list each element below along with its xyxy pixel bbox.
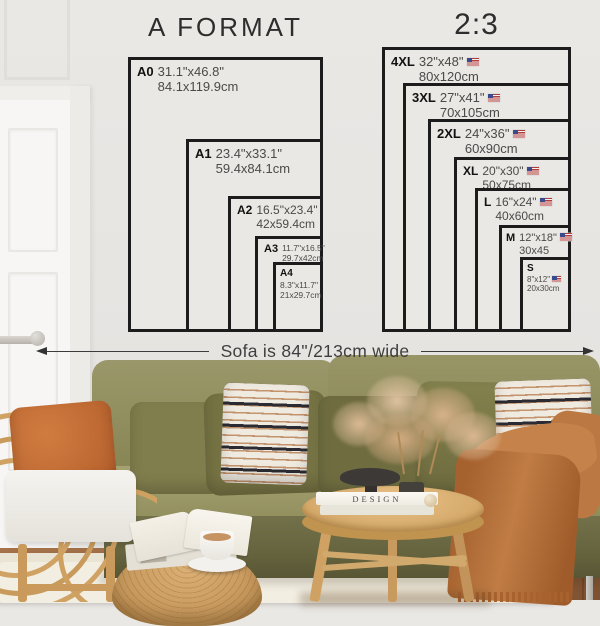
book (320, 505, 434, 515)
chair-seat-cushion (6, 470, 136, 542)
a-format-title: A FORMAT (128, 12, 323, 43)
us-flag-icon (488, 94, 500, 102)
size-code: A2 (237, 203, 252, 231)
size-cm: 84.1x119.9cm (158, 79, 239, 94)
size-code: A3 (264, 243, 278, 263)
arrow-line (47, 351, 209, 352)
sofa-width-annotation: Sofa is 84"/213cm wide (36, 342, 594, 360)
size-inches: 12"x18" (519, 232, 572, 245)
size-cm: 60x90cm (465, 141, 525, 156)
size-inches: 27"x41" (440, 90, 500, 105)
size-inches: 8.3"x11.7" (280, 280, 322, 290)
size-code: A4 (280, 268, 322, 280)
size-inches: 16.5"x23.4" (256, 203, 317, 217)
us-flag-icon (540, 198, 552, 206)
striped-pillow (220, 383, 309, 486)
size-inches: 24"x36" (465, 126, 525, 141)
size-cm: 42x59.4cm (256, 217, 317, 231)
size-cm: 20x30cm (527, 284, 561, 293)
ratio-2-3-title: 2:3 (382, 8, 571, 42)
ratio-2-3-chart: 4XL 32"x48" 80x120cm 3XL 27"x41" 70x105c… (382, 47, 571, 332)
size-code: A0 (137, 64, 154, 95)
design-book: DESIGN (316, 492, 438, 505)
size-inches: 11.7"x16.5" (282, 243, 325, 253)
size-box-s: S 8"x12" 20x30cm (520, 257, 571, 332)
size-cm: 59.4x84.1cm (216, 161, 290, 176)
size-code: 2XL (437, 126, 461, 157)
arrow-head-left-icon (36, 347, 47, 355)
us-flag-icon (467, 58, 479, 66)
size-cm: 40x60cm (495, 209, 551, 223)
us-flag-icon (552, 276, 561, 282)
us-flag-icon (527, 167, 539, 175)
size-code: 3XL (412, 90, 436, 121)
book-spine-text: DESIGN (352, 494, 401, 504)
arrow-line (421, 351, 583, 352)
size-inches: 8"x12" (527, 275, 561, 284)
size-box-a4: A4 8.3"x11.7" 21x29.7cm (273, 262, 323, 332)
size-code: S (527, 263, 561, 275)
size-cm: 21x29.7cm (280, 290, 322, 300)
wood-bead (424, 494, 437, 507)
size-code: 4XL (391, 54, 415, 85)
wall-panel-molding (4, 0, 70, 80)
coffee-cup (200, 531, 234, 560)
us-flag-icon (513, 130, 525, 138)
book-stack: DESIGN (316, 492, 438, 516)
chair-leg (18, 544, 27, 602)
size-code: L (484, 195, 491, 223)
sofa-leg (586, 576, 593, 600)
size-code: M (506, 232, 515, 258)
pedestal-bowl (340, 468, 400, 486)
a-format-chart: A0 31.1"x46.8" 84.1x119.9cm A1 23.4"x33.… (128, 57, 323, 332)
size-inches: 32"x48" (419, 54, 479, 69)
arrow-head-right-icon (583, 347, 594, 355)
size-inches: 23.4"x33.1" (216, 146, 290, 161)
door-panel (8, 128, 58, 252)
size-code: A1 (195, 146, 212, 177)
size-inches: 20"x30" (482, 164, 538, 178)
sofa-width-label: Sofa is 84"/213cm wide (209, 341, 422, 362)
size-inches: 31.1"x46.8" (158, 64, 239, 79)
chair-crossbar (18, 584, 116, 591)
size-cm: 30x45 (519, 245, 572, 258)
size-inches: 16"x24" (495, 195, 551, 209)
us-flag-icon (560, 233, 572, 241)
flower-bloom (445, 412, 501, 460)
